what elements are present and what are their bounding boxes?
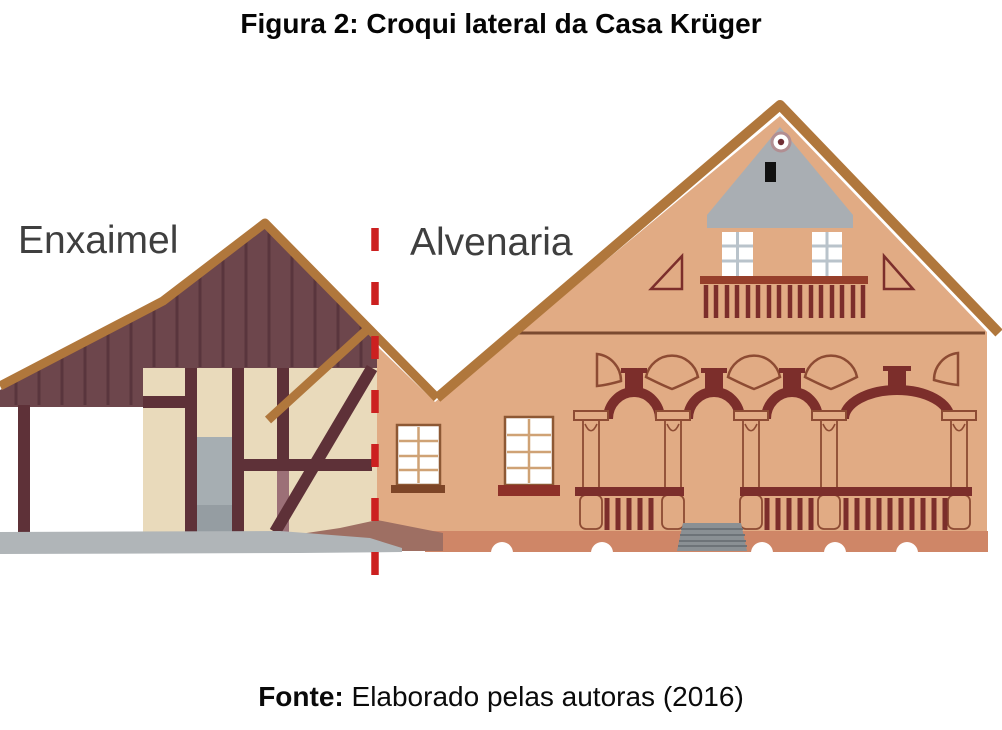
balcony-rail [700,276,868,284]
gable-window-left [722,232,753,276]
attic-vent [765,162,776,182]
entrance-steps [677,523,747,551]
figure-container: Figura 2: Croqui lateral da Casa Krüger … [0,0,1002,730]
porch-post [18,405,30,533]
label-enxaimel: Enxaimel [18,219,178,263]
gable-ornament-icon [772,133,790,151]
label-alvenaria: Alvenaria [410,221,573,265]
figure-caption: Fonte: Elaborado pelas autoras (2016) [0,681,1002,713]
figure-title: Figura 2: Croqui lateral da Casa Krüger [0,8,1002,40]
right-wall [377,116,987,532]
source-label: Fonte: [258,681,344,712]
house-drawing [0,0,1002,730]
source-text: Elaborado pelas autoras (2016) [352,681,744,712]
right-house [377,105,999,564]
facade-window-large [498,417,560,496]
door [197,437,232,533]
facade-window-small [391,425,445,493]
timber-wall [143,368,377,533]
gable-window-right [812,232,842,276]
